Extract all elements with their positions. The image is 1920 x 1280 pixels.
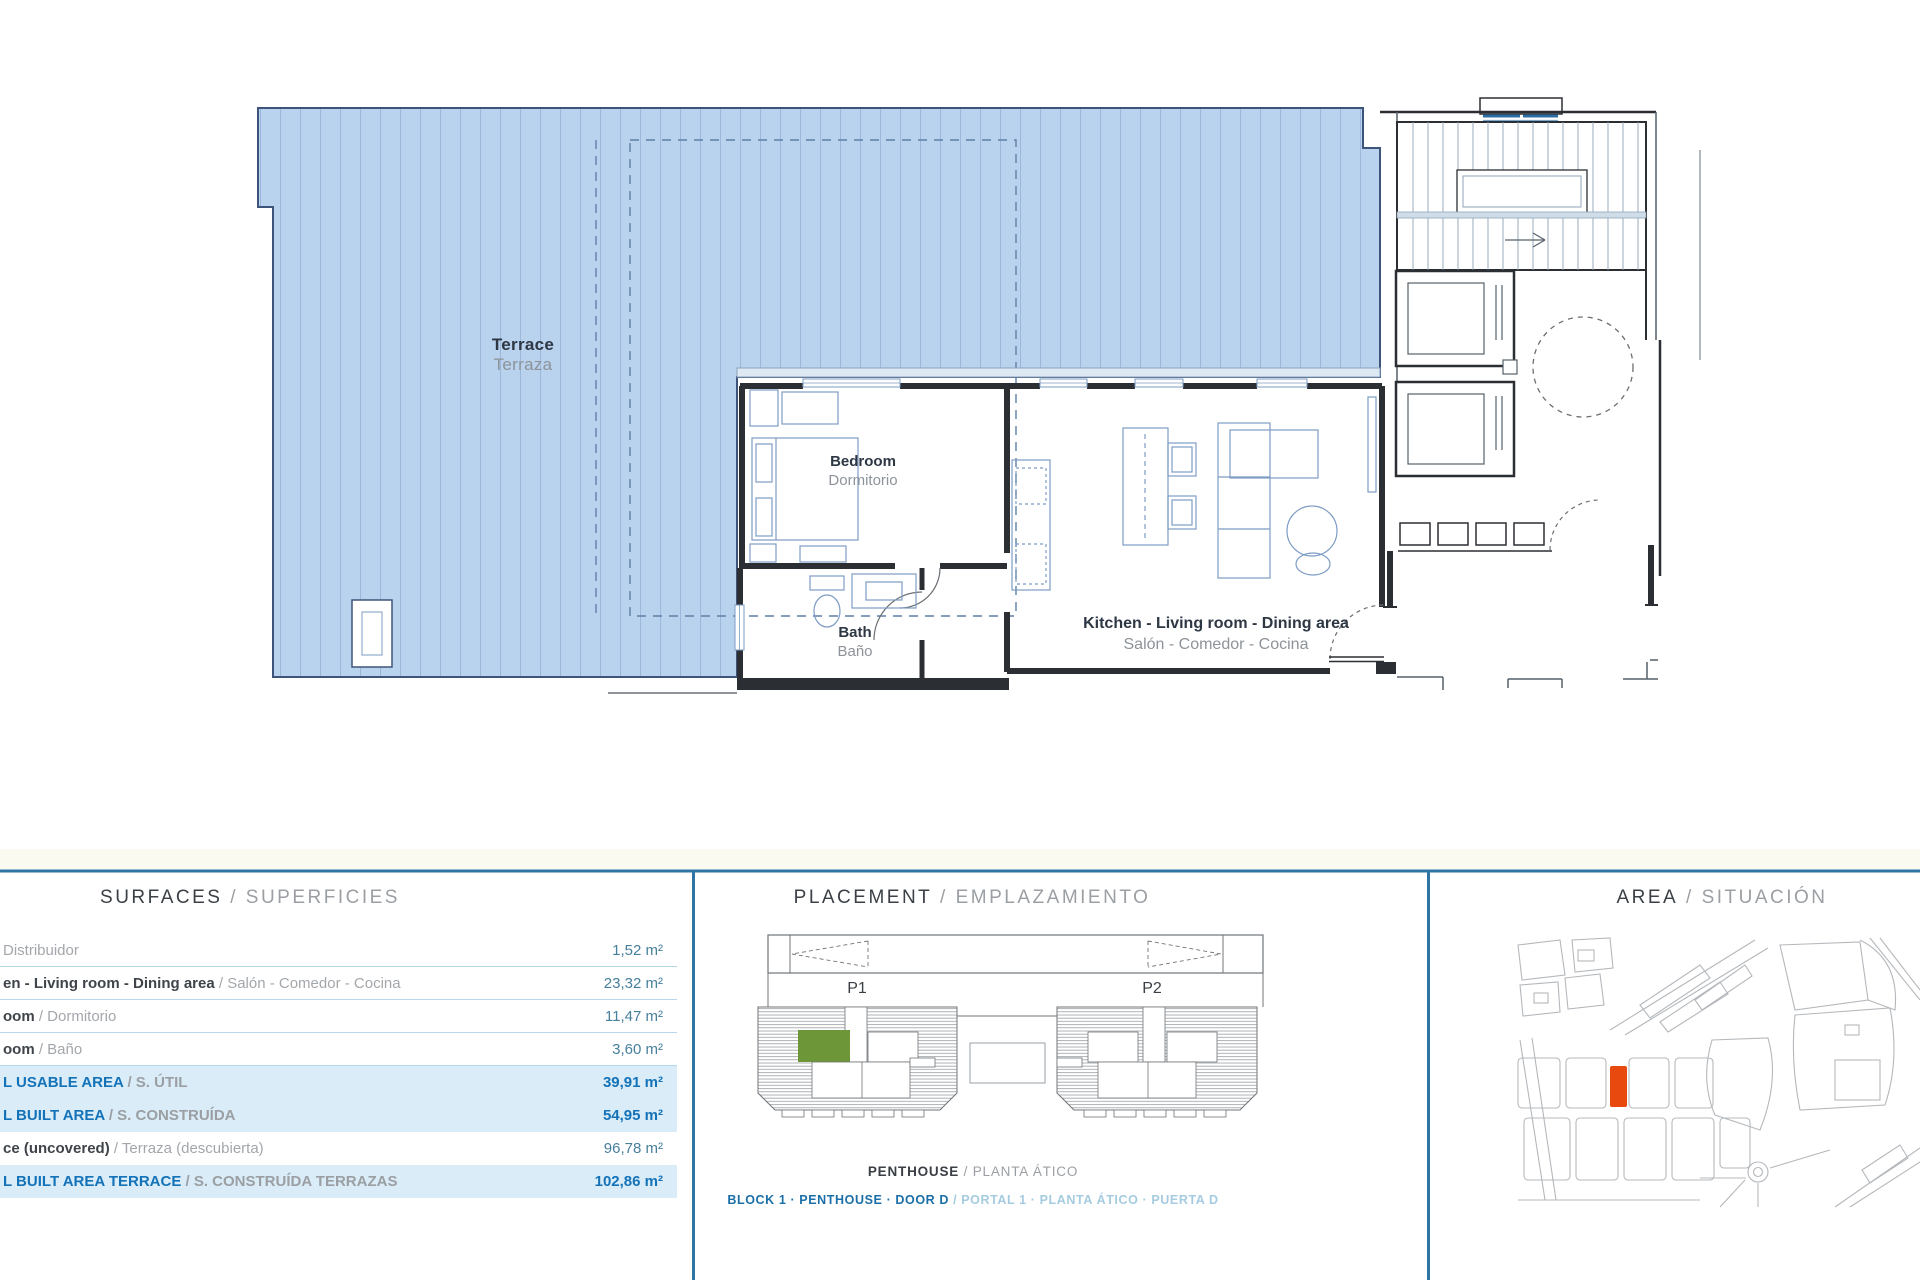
placement-title-es: EMPLAZAMIENTO [956, 887, 1151, 908]
surfaces-title-sep: / [222, 887, 245, 908]
cream-band [0, 849, 1920, 869]
kitchen-label-en: Kitchen - Living room - Dining area [1083, 613, 1349, 634]
surfaces-table: Distribuidor 1,52 m² en - Living room - … [0, 934, 677, 1198]
row-value: 11,47 m² [605, 1008, 663, 1025]
row-label-en: L BUILT AREA TERRACE [3, 1173, 181, 1190]
placement-caption-floor: PENTHOUSE / PLANTA ÁTICO [868, 1164, 1078, 1179]
area-title: AREA / SITUACIÓN [1616, 887, 1827, 909]
stair-core [1380, 112, 1700, 690]
table-row-total: L BUILT AREA / S. CONSTRUÍDA 54,95 m² [0, 1099, 677, 1132]
caption-floor-sep: / [959, 1164, 973, 1179]
bedroom-label-en: Bedroom [828, 452, 897, 471]
row-label-es: / Baño [35, 1041, 83, 1058]
caption-floor-es: PLANTA ÁTICO [973, 1164, 1078, 1179]
caption-unit-sep: / [949, 1193, 961, 1207]
highlighted-unit [798, 1030, 850, 1062]
floor-plan-sheet: Terrace Terraza Bedroom Dormitorio Bath … [0, 0, 1920, 1280]
portal-2-label: P2 [1142, 980, 1162, 998]
situation-map [1518, 938, 1920, 1207]
row-label-es: / S. CONSTRUÍDA [105, 1107, 236, 1124]
row-value: 23,32 m² [604, 975, 663, 992]
row-value: 54,95 m² [603, 1107, 663, 1124]
row-value: 96,78 m² [604, 1140, 663, 1157]
bath-label: Bath Baño [837, 623, 872, 661]
surfaces-title-en: SURFACES [100, 887, 222, 908]
placement-title: PLACEMENT / EMPLAZAMIENTO [794, 887, 1151, 909]
table-row-total: L USABLE AREA / S. ÚTIL 39,91 m² [0, 1066, 677, 1099]
row-label-es: / S. ÚTIL [123, 1074, 187, 1091]
surfaces-title: SURFACES / SUPERFICIES [100, 887, 400, 909]
table-row: en - Living room - Dining area / Salón -… [0, 967, 677, 1000]
row-value: 102,86 m² [595, 1173, 663, 1190]
bedroom-label-es: Dormitorio [828, 471, 897, 490]
table-row: Distribuidor 1,52 m² [0, 934, 677, 967]
table-row: oom / Dormitorio 11,47 m² [0, 1000, 677, 1033]
row-value: 39,91 m² [603, 1074, 663, 1091]
kitchen-label-es: Salón - Comedor - Cocina [1083, 634, 1349, 655]
table-row-total: L BUILT AREA TERRACE / S. CONSTRUÍDA TER… [0, 1165, 677, 1198]
highlighted-plot [1610, 1066, 1627, 1107]
area-title-es: SITUACIÓN [1702, 887, 1828, 908]
row-value: 3,60 m² [612, 1041, 663, 1058]
bath-label-en: Bath [837, 623, 872, 642]
row-label-en: oom [3, 1008, 35, 1025]
row-label-es: / Salón - Comedor - Cocina [215, 975, 401, 992]
terrace-label: Terrace Terraza [492, 335, 554, 375]
placement-title-en: PLACEMENT [794, 887, 933, 908]
row-label-es: / Terraza (descubierta) [110, 1140, 264, 1157]
table-row: ce (uncovered) / Terraza (descubierta) 9… [0, 1132, 677, 1165]
table-row: oom / Baño 3,60 m² [0, 1033, 677, 1066]
row-label-en: L USABLE AREA [3, 1074, 123, 1091]
area-title-en: AREA [1616, 887, 1678, 908]
terrace-deck [258, 108, 1380, 693]
area-title-sep: / [1678, 887, 1701, 908]
placement-title-sep: / [932, 887, 955, 908]
portal-1-label: P1 [847, 980, 867, 998]
row-label-es: / Dormitorio [35, 1008, 117, 1025]
row-label-es: Distribuidor [3, 942, 79, 959]
bath-label-es: Baño [837, 642, 872, 661]
row-label-en: L BUILT AREA [3, 1107, 105, 1124]
terrace-label-es: Terraza [492, 355, 554, 375]
caption-unit-es: PORTAL 1 · PLANTA ÁTICO · PUERTA D [961, 1193, 1218, 1207]
bedroom-label: Bedroom Dormitorio [828, 452, 897, 490]
row-value: 1,52 m² [612, 942, 663, 959]
caption-floor-en: PENTHOUSE [868, 1164, 959, 1179]
placement-diagram [758, 935, 1263, 1117]
furniture [750, 390, 1376, 627]
row-label-es: / S. CONSTRUÍDA TERRAZAS [181, 1173, 397, 1190]
kitchen-label: Kitchen - Living room - Dining area Saló… [1083, 613, 1349, 655]
row-label-en: en - Living room - Dining area [3, 975, 215, 992]
row-label-en: ce (uncovered) [3, 1140, 110, 1157]
placement-caption-unit: BLOCK 1 · PENTHOUSE · DOOR D / PORTAL 1 … [727, 1193, 1218, 1207]
caption-unit-en: BLOCK 1 · PENTHOUSE · DOOR D [727, 1193, 949, 1207]
surfaces-title-es: SUPERFICIES [246, 887, 400, 908]
terrace-label-en: Terrace [492, 335, 554, 355]
row-label-en: oom [3, 1041, 35, 1058]
